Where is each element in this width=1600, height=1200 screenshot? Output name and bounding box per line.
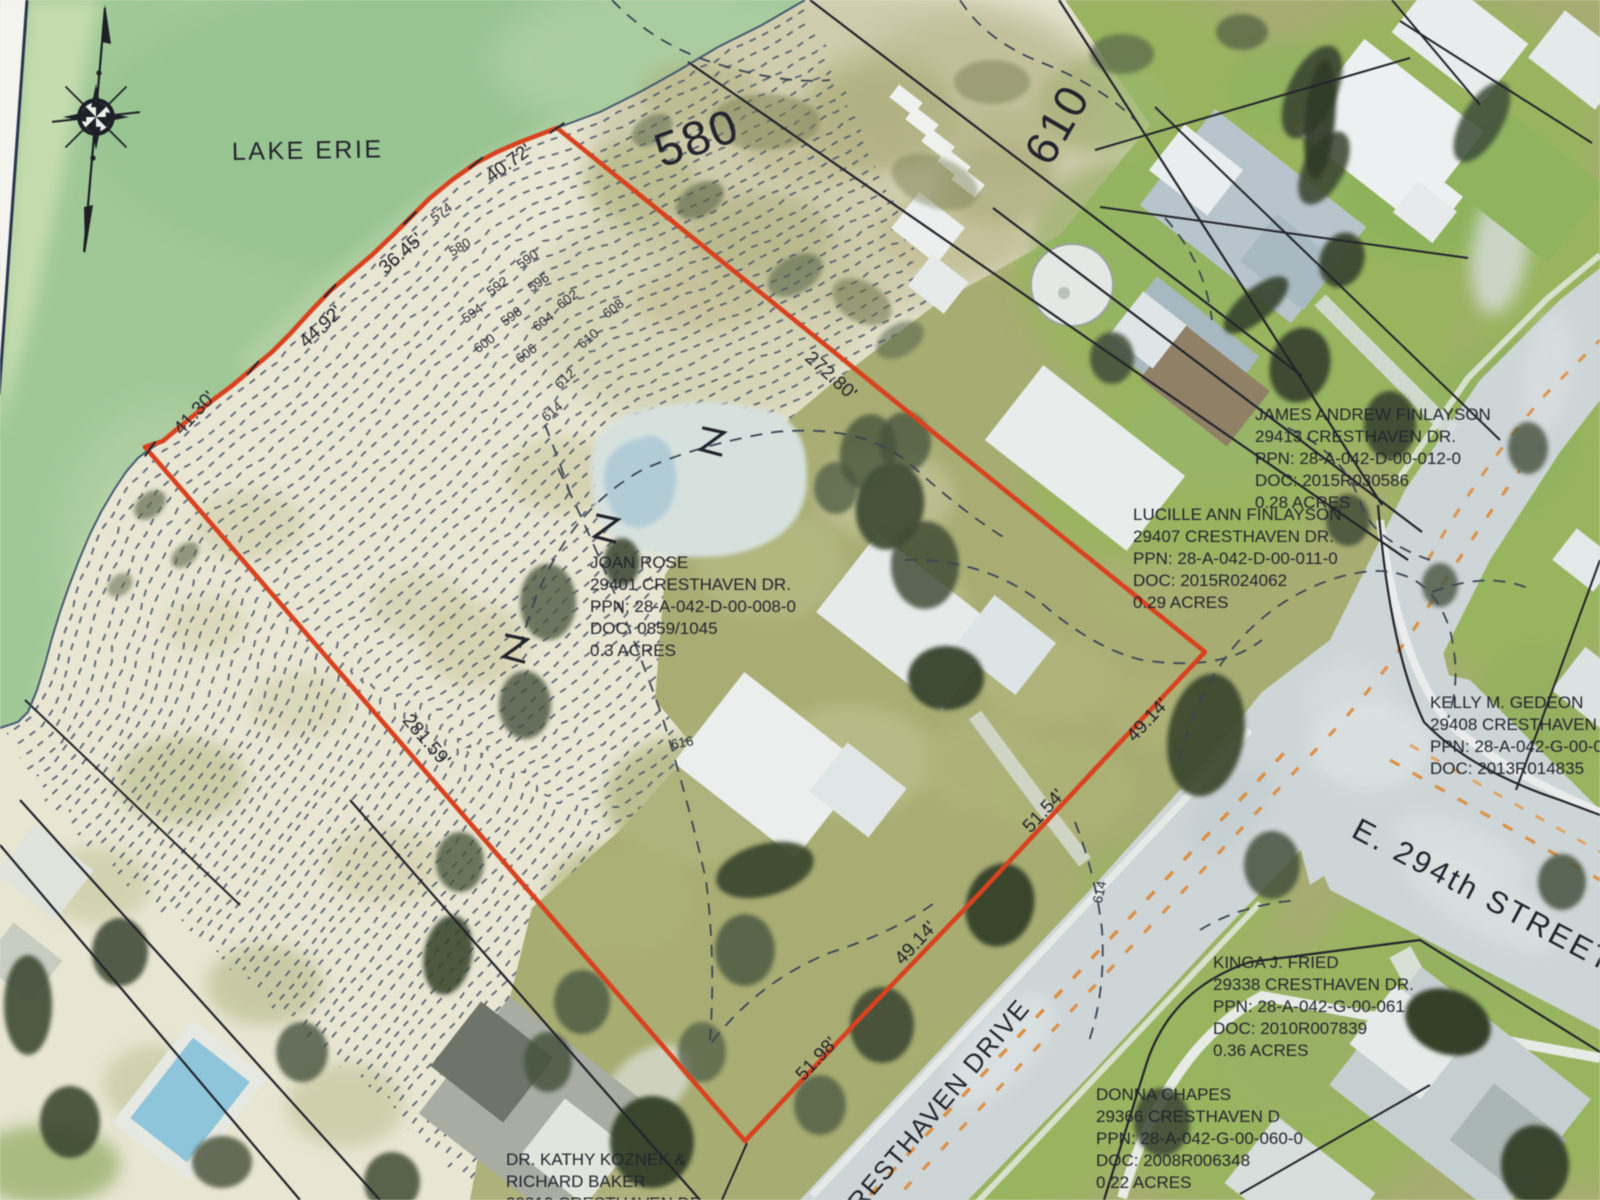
- svg-text:0.29 ACRES: 0.29 ACRES: [1133, 593, 1228, 612]
- svg-text:PPN: 28-A-042-D-00-011-0: PPN: 28-A-042-D-00-011-0: [1133, 549, 1338, 568]
- svg-text:DOC: 2008R006348: DOC: 2008R006348: [1096, 1151, 1250, 1170]
- svg-text:PPN: 28-A-042-D-00-012-0: PPN: 28-A-042-D-00-012-0: [1255, 449, 1461, 468]
- svg-text:29310 CRESTHAVEN DR: 29310 CRESTHAVEN DR: [506, 1194, 702, 1200]
- svg-text:DOC: 2013R014835: DOC: 2013R014835: [1430, 759, 1584, 778]
- svg-text:29366 CRESTHAVEN D: 29366 CRESTHAVEN D: [1096, 1107, 1280, 1126]
- svg-text:PPN: 28-A-042-G-00-02: PPN: 28-A-042-G-00-02: [1430, 737, 1600, 756]
- svg-text:DOC: 2015R030586: DOC: 2015R030586: [1255, 471, 1409, 490]
- svg-text:DOC: 2015R024062: DOC: 2015R024062: [1133, 571, 1287, 590]
- svg-text:DOC: 2010R007839: DOC: 2010R007839: [1213, 1019, 1367, 1038]
- svg-text:29401 CRESTHAVEN DR.: 29401 CRESTHAVEN DR.: [590, 575, 791, 594]
- svg-text:0.36 ACRES: 0.36 ACRES: [1213, 1041, 1308, 1060]
- svg-text:PPN: 28-A-042-G-00-060-0: PPN: 28-A-042-G-00-060-0: [1096, 1129, 1303, 1148]
- svg-text:PPN: 28-A-042-G-00-061: PPN: 28-A-042-G-00-061: [1213, 997, 1405, 1016]
- svg-text:LUCILLE ANN FINLAYSON: LUCILLE ANN FINLAYSON: [1133, 505, 1341, 524]
- svg-text:29407 CRESTHAVEN DR.: 29407 CRESTHAVEN DR.: [1133, 527, 1334, 546]
- svg-text:0.22 ACRES: 0.22 ACRES: [1096, 1173, 1191, 1192]
- svg-text:RICHARD BAKER: RICHARD BAKER: [506, 1172, 646, 1191]
- svg-text:KINGA J. FRIED: KINGA J. FRIED: [1213, 953, 1339, 972]
- svg-text:JOAN ROSE: JOAN ROSE: [590, 553, 688, 572]
- svg-text:LAKE ERIE: LAKE ERIE: [232, 135, 384, 166]
- svg-text:0.3 ACRES: 0.3 ACRES: [590, 641, 676, 660]
- svg-text:29338 CRESTHAVEN DR.: 29338 CRESTHAVEN DR.: [1213, 975, 1414, 994]
- svg-text:DONNA CHAPES: DONNA CHAPES: [1096, 1085, 1231, 1104]
- svg-text:JAMES ANDREW FINLAYSON: JAMES ANDREW FINLAYSON: [1255, 405, 1491, 424]
- svg-text:KELLY M. GEDEON: KELLY M. GEDEON: [1430, 693, 1583, 712]
- svg-text:29408 CRESTHAVEN D: 29408 CRESTHAVEN D: [1430, 715, 1600, 734]
- svg-text:DOC: 0859/1045: DOC: 0859/1045: [590, 619, 718, 638]
- svg-text:DR. KATHY KOZNEK &: DR. KATHY KOZNEK &: [506, 1150, 686, 1169]
- svg-text:PPN: 28-A-042-D-00-008-0: PPN: 28-A-042-D-00-008-0: [590, 597, 796, 616]
- svg-text:29413 CRESTHAVEN DR.: 29413 CRESTHAVEN DR.: [1255, 427, 1456, 446]
